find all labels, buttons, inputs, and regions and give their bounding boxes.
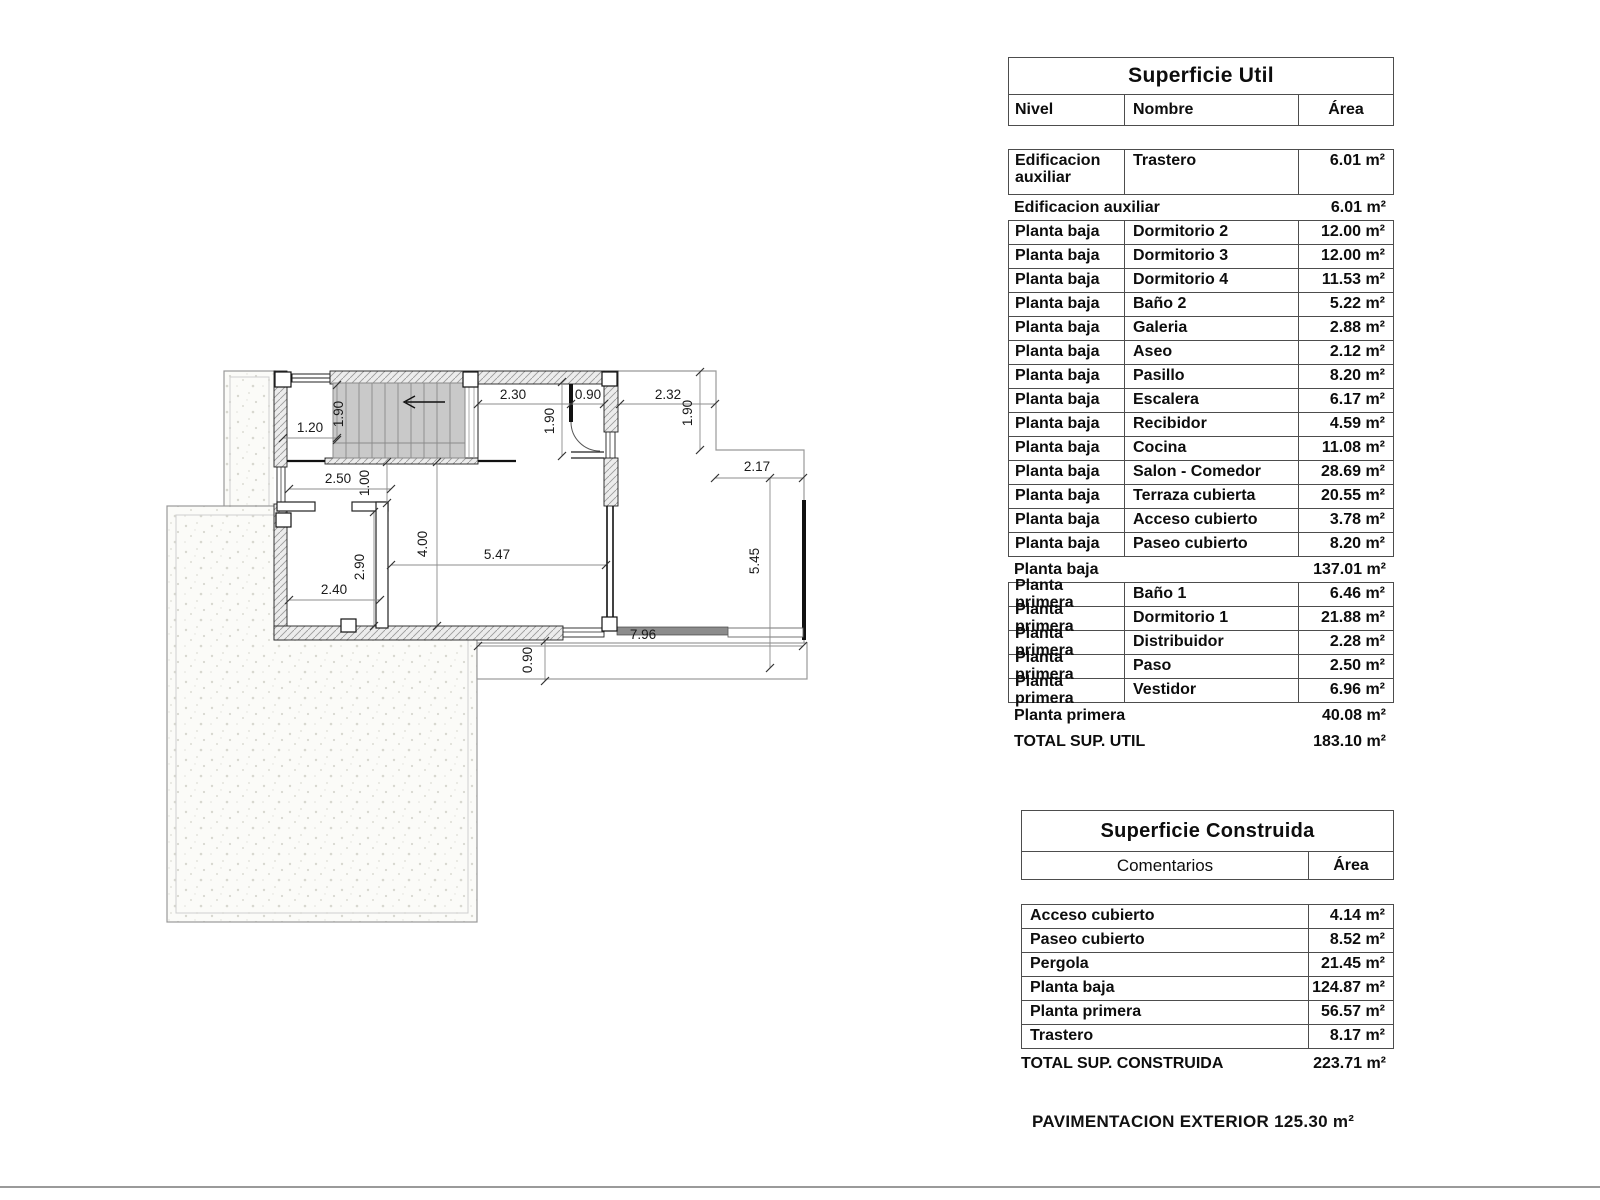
table-row: Planta bajaAseo2.12 m² — [1008, 340, 1394, 365]
dim-label: 2.17 — [744, 459, 770, 474]
row-label: Planta baja — [1008, 562, 1098, 579]
row-label: Acceso cubierto — [1022, 905, 1309, 928]
row-label: Paseo cubierto — [1022, 929, 1309, 952]
row-area: 11.53 m² — [1299, 269, 1393, 292]
row-nivel: Planta baja — [1009, 437, 1125, 460]
row-area: 21.88 m² — [1299, 607, 1393, 630]
row-label: Trastero — [1022, 1025, 1309, 1048]
row-area: 2.28 m² — [1299, 631, 1393, 654]
row-nivel: Planta baja — [1009, 245, 1125, 268]
window — [606, 432, 615, 458]
row-nombre: Paseo cubierto — [1125, 533, 1299, 556]
column-header-area: Área — [1299, 95, 1393, 125]
table-row: Planta bajaDormitorio 312.00 m² — [1008, 244, 1394, 269]
table-row: Planta bajaTerraza cubierta20.55 m² — [1008, 484, 1394, 509]
window — [563, 628, 604, 637]
superficie-util-table: Superficie Util Nivel Nombre Área Edific… — [1008, 57, 1394, 755]
row-nivel: Edificacion auxiliar — [1009, 150, 1125, 194]
subtotal-row: Edificacion auxiliar6.01 m² — [1008, 195, 1394, 221]
terrace-low-glass — [728, 628, 803, 637]
row-nombre: Aseo — [1125, 341, 1299, 364]
dim-label: 2.40 — [321, 582, 347, 597]
row-label: Planta primera — [1022, 1001, 1309, 1024]
row-nombre: Dormitorio 3 — [1125, 245, 1299, 268]
row-area: 40.08 m² — [1322, 708, 1394, 725]
page-bottom-edge — [0, 1186, 1600, 1188]
row-nombre: Vestidor — [1125, 679, 1299, 702]
column-header-comentarios: Comentarios — [1022, 852, 1309, 879]
pavimentacion-note: PAVIMENTACION EXTERIOR 125.30 m² — [1032, 1112, 1354, 1132]
column — [341, 619, 356, 632]
table-row: Planta bajaDormitorio 212.00 m² — [1008, 220, 1394, 245]
row-nivel: Planta baja — [1009, 389, 1125, 412]
table-title: Superficie Util — [1008, 57, 1394, 95]
row-nombre: Dormitorio 4 — [1125, 269, 1299, 292]
row-area: 2.50 m² — [1299, 655, 1393, 678]
table-row: Planta primera56.57 m² — [1021, 1000, 1394, 1025]
dim-label: 4.00 — [415, 531, 430, 557]
total-row: TOTAL SUP. CONSTRUIDA223.71 m² — [1021, 1051, 1394, 1077]
row-nivel: Planta baja — [1009, 221, 1125, 244]
blueprint-page: 2.30 0.90 2.32 1.90 1.90 1.90 1.20 2.50 … — [0, 0, 1600, 1200]
table-row: Planta bajaEscalera6.17 m² — [1008, 388, 1394, 413]
row-area: 12.00 m² — [1299, 221, 1393, 244]
row-nivel: Planta baja — [1009, 293, 1125, 316]
row-nivel: Planta primera — [1009, 679, 1125, 702]
row-area: 4.59 m² — [1299, 413, 1393, 436]
superficie-util-rows: Edificacion auxiliarTrastero6.01 m²Edifi… — [1008, 149, 1394, 755]
row-area: 6.17 m² — [1299, 389, 1393, 412]
row-nombre: Dormitorio 2 — [1125, 221, 1299, 244]
dim-label: 5.47 — [484, 547, 510, 562]
dim-label: 1.90 — [542, 408, 557, 434]
dim-label: 7.96 — [630, 627, 656, 642]
row-label: Edificacion auxiliar — [1008, 200, 1160, 217]
row-area: 2.88 m² — [1299, 317, 1393, 340]
row-area: 8.20 m² — [1299, 365, 1393, 388]
row-nombre: Escalera — [1125, 389, 1299, 412]
row-nombre: Dormitorio 1 — [1125, 607, 1299, 630]
row-area: 6.01 m² — [1331, 200, 1394, 217]
column — [275, 372, 291, 387]
row-nivel: Planta baja — [1009, 509, 1125, 532]
dim-label: 5.45 — [747, 548, 762, 574]
column — [276, 513, 291, 527]
row-area: 3.78 m² — [1299, 509, 1393, 532]
table-row: Planta bajaCocina11.08 m² — [1008, 436, 1394, 461]
row-area: 8.17 m² — [1309, 1025, 1393, 1048]
row-area: 12.00 m² — [1299, 245, 1393, 268]
row-nombre: Terraza cubierta — [1125, 485, 1299, 508]
row-nombre: Cocina — [1125, 437, 1299, 460]
row-nombre: Baño 2 — [1125, 293, 1299, 316]
row-nivel: Planta baja — [1009, 341, 1125, 364]
row-nivel: Planta baja — [1009, 365, 1125, 388]
row-area: 183.10 m² — [1313, 734, 1394, 751]
row-nombre: Trastero — [1125, 150, 1299, 194]
table-row: Edificacion auxiliarTrastero6.01 m² — [1008, 149, 1394, 195]
row-area: 124.87 m² — [1309, 977, 1393, 1000]
column — [463, 372, 478, 387]
row-nombre: Baño 1 — [1125, 583, 1299, 606]
dim-label: 2.30 — [500, 387, 526, 402]
column-header-nombre: Nombre — [1125, 95, 1299, 125]
staircase — [333, 383, 465, 458]
row-area: 20.55 m² — [1299, 485, 1393, 508]
row-area: 56.57 m² — [1309, 1001, 1393, 1024]
row-label: Planta primera — [1008, 708, 1125, 725]
row-area: 5.22 m² — [1299, 293, 1393, 316]
row-area: 2.12 m² — [1299, 341, 1393, 364]
row-nombre: Pasillo — [1125, 365, 1299, 388]
table-row: Trastero8.17 m² — [1021, 1024, 1394, 1049]
dim-label: 1.00 — [357, 470, 372, 496]
row-nombre: Galeria — [1125, 317, 1299, 340]
table-row: Planta bajaRecibidor4.59 m² — [1008, 412, 1394, 437]
row-nombre: Paso — [1125, 655, 1299, 678]
dim-label: 1.90 — [331, 401, 346, 427]
row-label: TOTAL SUP. CONSTRUIDA — [1021, 1056, 1223, 1073]
table-row: Planta primeraVestidor6.96 m² — [1008, 678, 1394, 703]
subtotal-row: Planta primera40.08 m² — [1008, 703, 1394, 729]
dim-label: 1.90 — [680, 400, 695, 426]
row-label: Planta baja — [1022, 977, 1309, 1000]
row-area: 28.69 m² — [1299, 461, 1393, 484]
row-nombre: Salon - Comedor — [1125, 461, 1299, 484]
row-area: 11.08 m² — [1299, 437, 1393, 460]
row-area: 6.96 m² — [1299, 679, 1393, 702]
table-row: Planta bajaAcceso cubierto3.78 m² — [1008, 508, 1394, 533]
superficie-construida-table: Superficie Construida Comentarios Área A… — [1021, 810, 1394, 1077]
row-area: 8.52 m² — [1309, 929, 1393, 952]
row-area: 223.71 m² — [1313, 1056, 1394, 1073]
table-row: Planta bajaPasillo8.20 m² — [1008, 364, 1394, 389]
row-area: 6.01 m² — [1299, 150, 1393, 194]
table-row: Planta bajaGaleria2.88 m² — [1008, 316, 1394, 341]
terrace-railing — [802, 500, 806, 640]
row-area: 21.45 m² — [1309, 953, 1393, 976]
dim-label: 1.20 — [297, 420, 323, 435]
table-row: Planta bajaPaseo cubierto8.20 m² — [1008, 532, 1394, 557]
column-header-nivel: Nivel — [1009, 95, 1125, 125]
table-title: Superficie Construida — [1021, 810, 1394, 852]
total-row: TOTAL SUP. UTIL183.10 m² — [1008, 729, 1394, 755]
stair-mullion — [465, 384, 478, 458]
row-label: TOTAL SUP. UTIL — [1008, 734, 1145, 751]
row-area: 6.46 m² — [1299, 583, 1393, 606]
dim-label: 2.50 — [325, 471, 351, 486]
dim-label: 2.90 — [352, 554, 367, 580]
table-header: Comentarios Área — [1021, 851, 1394, 880]
column-header-area: Área — [1309, 852, 1393, 879]
table-header: Nivel Nombre Área — [1008, 94, 1394, 126]
table-row: Planta bajaSalon - Comedor28.69 m² — [1008, 460, 1394, 485]
row-nivel: Planta baja — [1009, 317, 1125, 340]
row-nombre: Distribuidor — [1125, 631, 1299, 654]
row-area: 8.20 m² — [1299, 533, 1393, 556]
table-row: Acceso cubierto4.14 m² — [1021, 904, 1394, 929]
column — [602, 617, 617, 631]
table-row: Planta bajaDormitorio 411.53 m² — [1008, 268, 1394, 293]
table-row: Paseo cubierto8.52 m² — [1021, 928, 1394, 953]
row-nivel: Planta baja — [1009, 485, 1125, 508]
column — [602, 372, 617, 386]
row-area: 137.01 m² — [1313, 562, 1394, 579]
dim-label: 0.90 — [520, 647, 535, 673]
row-nivel: Planta baja — [1009, 269, 1125, 292]
row-area: 4.14 m² — [1309, 905, 1393, 928]
row-nivel: Planta baja — [1009, 413, 1125, 436]
row-label: Pergola — [1022, 953, 1309, 976]
row-nombre: Recibidor — [1125, 413, 1299, 436]
table-row: Planta bajaBaño 25.22 m² — [1008, 292, 1394, 317]
dim-label: 0.90 — [575, 387, 601, 402]
row-nivel: Planta baja — [1009, 533, 1125, 556]
table-row: Planta baja124.87 m² — [1021, 976, 1394, 1001]
superficie-construida-rows: Acceso cubierto4.14 m²Paseo cubierto8.52… — [1021, 904, 1394, 1077]
table-row: Pergola21.45 m² — [1021, 952, 1394, 977]
row-nombre: Acceso cubierto — [1125, 509, 1299, 532]
row-nivel: Planta baja — [1009, 461, 1125, 484]
dim-label: 2.32 — [655, 387, 681, 402]
